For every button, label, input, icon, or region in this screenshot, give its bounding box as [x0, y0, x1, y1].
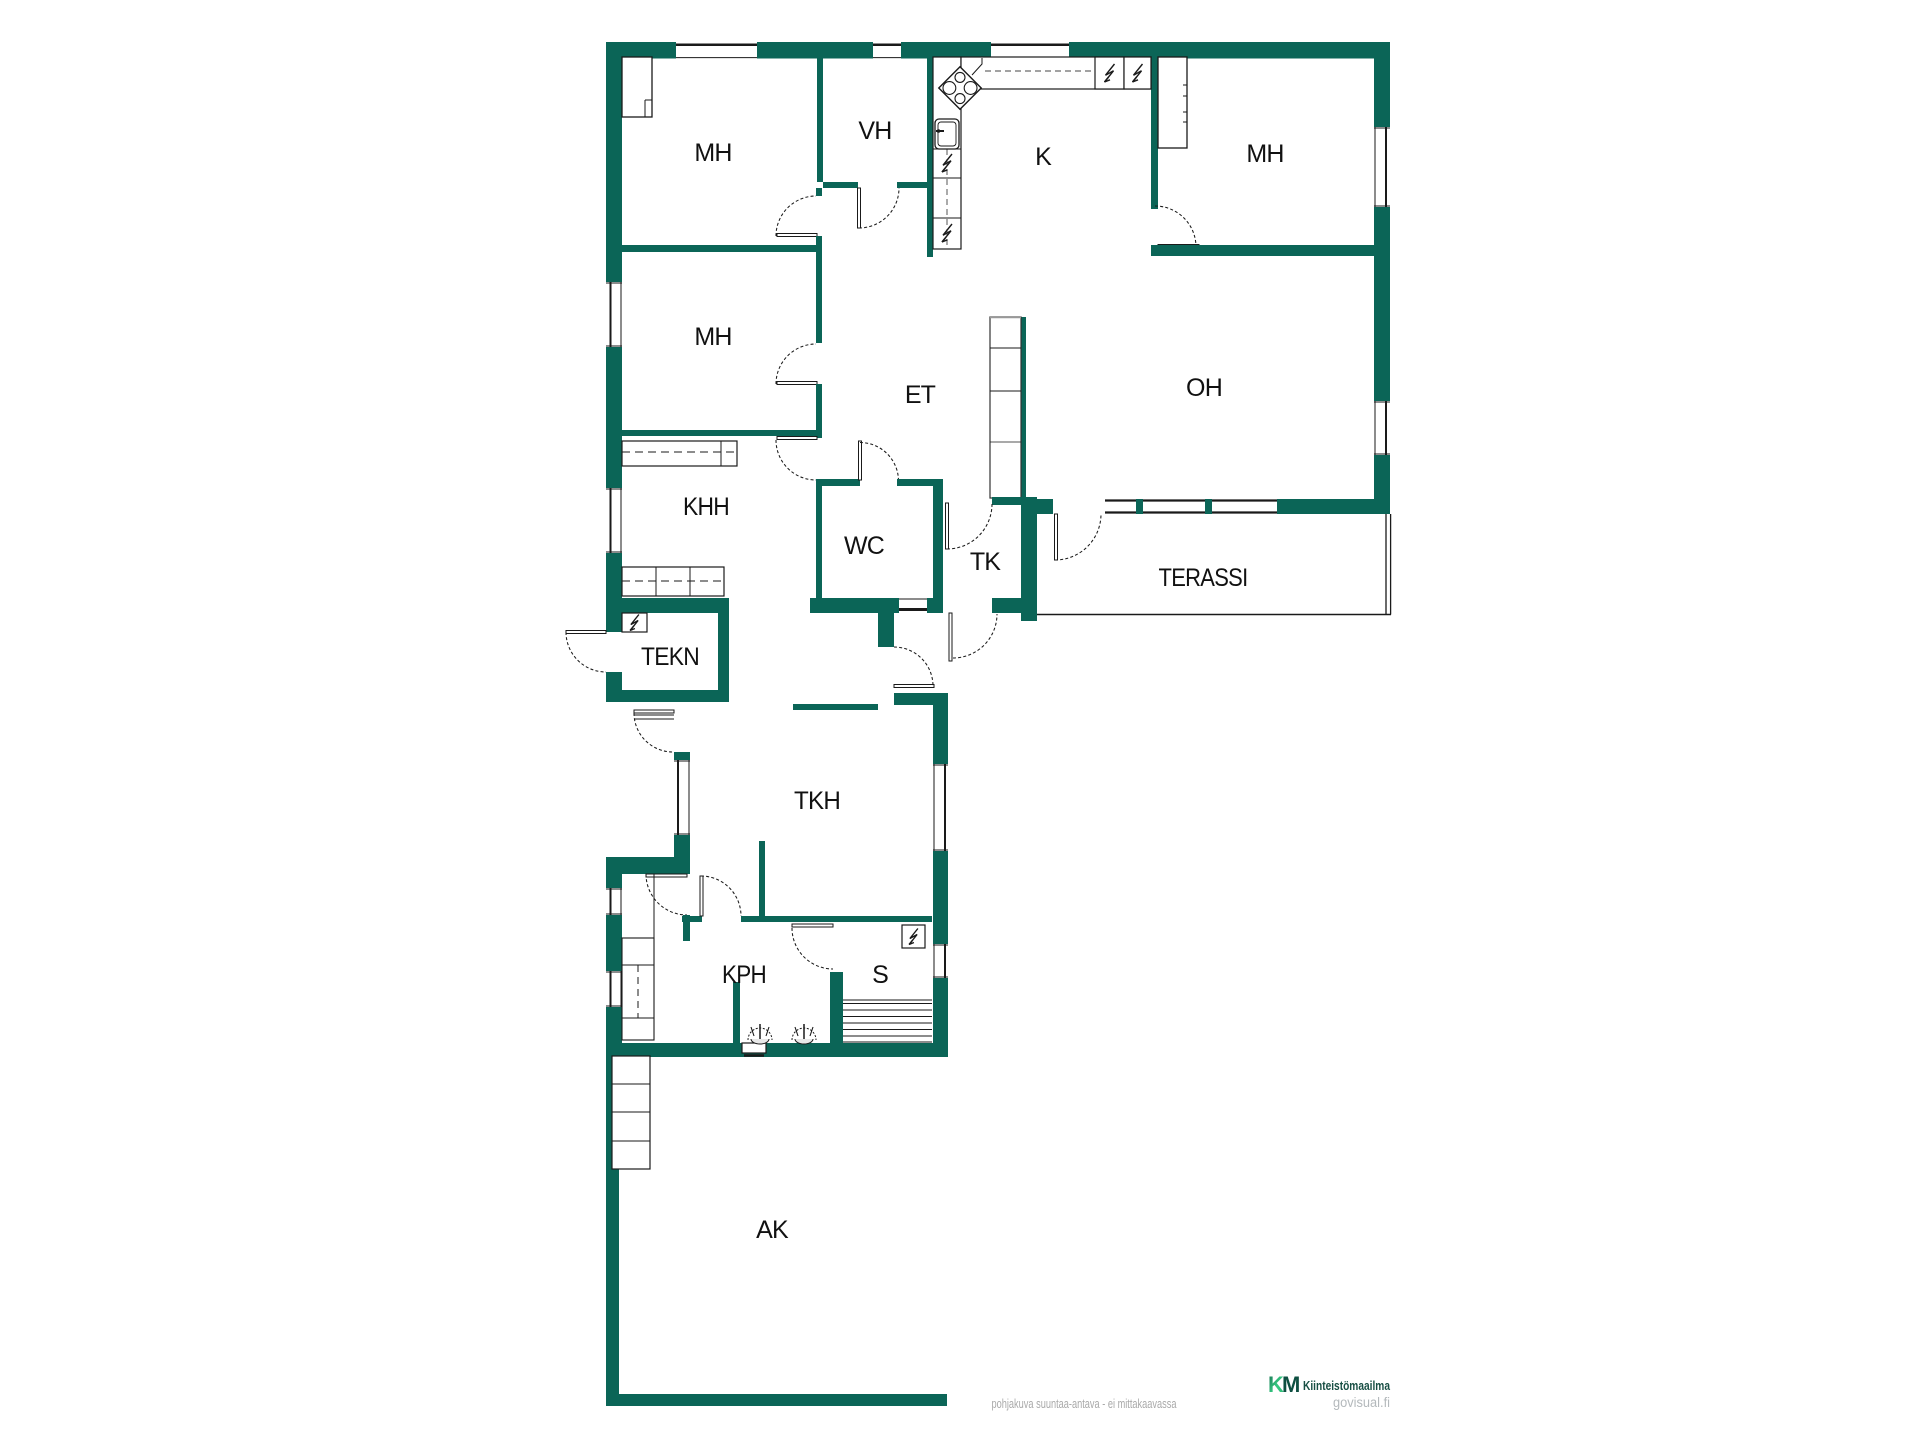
svg-text:S: S	[872, 961, 888, 989]
svg-text:MH: MH	[694, 139, 731, 167]
svg-text:K: K	[1035, 143, 1052, 171]
svg-text:TERASSI: TERASSI	[1159, 564, 1248, 592]
svg-text:TEKN: TEKN	[641, 643, 699, 671]
svg-text:Kiinteistömaailma: Kiinteistömaailma	[1303, 1378, 1391, 1393]
svg-text:pohjakuva suuntaa-antava - ei: pohjakuva suuntaa-antava - ei mittakaava…	[992, 1397, 1177, 1411]
svg-text:TKH: TKH	[794, 787, 840, 815]
svg-text:M: M	[1282, 1372, 1300, 1397]
svg-text:WC: WC	[844, 532, 885, 560]
svg-text:ET: ET	[905, 381, 936, 409]
svg-text:govisual.fi: govisual.fi	[1333, 1395, 1390, 1410]
svg-text:KPH: KPH	[722, 961, 766, 989]
svg-text:KHH: KHH	[683, 493, 729, 521]
svg-text:MH: MH	[694, 323, 731, 351]
svg-text:MH: MH	[1246, 140, 1283, 168]
svg-text:OH: OH	[1186, 374, 1222, 402]
svg-text:VH: VH	[858, 117, 891, 145]
svg-text:AK: AK	[756, 1216, 789, 1244]
svg-text:TK: TK	[970, 548, 1001, 576]
